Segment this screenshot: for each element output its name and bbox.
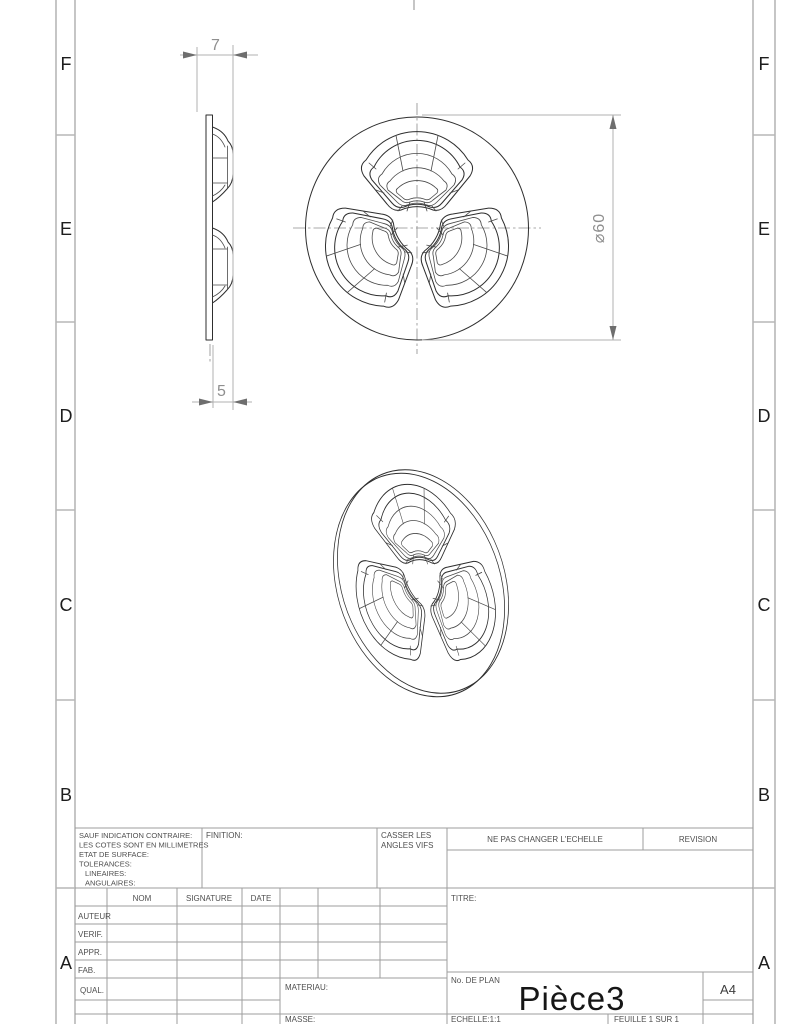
zone-letter: D	[60, 406, 73, 426]
col-nom: NOM	[133, 894, 152, 903]
feuille-label: FEUILLE 1 SUR 1	[614, 1015, 679, 1024]
zone-letter: A	[758, 953, 770, 973]
width-top-value: 7	[211, 37, 221, 54]
note-line: SAUF INDICATION CONTRAIRE:	[79, 831, 192, 840]
iso-back-edge	[318, 473, 521, 698]
side-view	[206, 115, 233, 364]
row-verif: VERIF.	[78, 930, 103, 939]
iso-pocket	[339, 541, 441, 677]
finition-label: FINITION:	[206, 831, 242, 840]
note-line: ETAT DE SURFACE:	[79, 850, 149, 859]
front-view	[293, 103, 541, 354]
materiau-label: MATERIAU:	[285, 983, 328, 992]
zone-letter: E	[758, 219, 770, 239]
zone-letters-right: F E D C B A	[758, 54, 771, 973]
zone-letter: F	[759, 54, 770, 74]
titre-label: TITRE:	[451, 894, 476, 903]
row-fab: FAB.	[78, 966, 95, 975]
part-name: Pièce3	[519, 980, 626, 1017]
iso-pocket	[422, 541, 506, 677]
diameter-value: ⌀60	[591, 213, 608, 243]
width-bottom-value: 5	[217, 383, 227, 400]
pocket-lower-left	[306, 188, 430, 324]
zone-letter: C	[60, 595, 73, 615]
width-dimension-bottom: 5	[192, 345, 252, 408]
arrow-up-icon	[610, 115, 617, 129]
masse-label: MASSE:	[285, 1015, 315, 1024]
title-block: SAUF INDICATION CONTRAIRE: LES COTES SON…	[75, 828, 753, 1024]
isometric-view	[317, 469, 525, 697]
pocket-lower-right	[404, 188, 528, 324]
no-scale-note: NE PAS CHANGER L'ECHELLE	[487, 835, 603, 844]
drawing-canvas: F E D C B A F E D C B A	[0, 0, 791, 1024]
zone-letter: E	[60, 219, 72, 239]
revision-label: REVISION	[679, 835, 717, 844]
zone-letter: C	[758, 595, 771, 615]
note-line: ANGULAIRES:	[85, 879, 135, 888]
row-appr: APPR.	[78, 948, 102, 957]
col-signature: SIGNATURE	[186, 894, 232, 903]
deburr-note: ANGLES VIFS	[381, 841, 433, 850]
note-line: TOLERANCES:	[79, 860, 132, 869]
drawing-sheet: F E D C B A F E D C B A	[0, 0, 791, 1024]
zone-letters-left: F E D C B A	[60, 54, 73, 973]
arrow-left-icon	[233, 399, 247, 406]
width-dimension-top: 7	[180, 37, 258, 410]
iso-front-face	[322, 469, 525, 694]
row-auteur: AUTEUR	[78, 912, 111, 921]
zone-letter: B	[60, 785, 72, 805]
zone-letter: D	[758, 406, 771, 426]
deburr-note: CASSER LES	[381, 831, 431, 840]
row-qual: QUAL.	[80, 986, 104, 995]
col-date: DATE	[251, 894, 272, 903]
arrow-down-icon	[610, 326, 617, 340]
note-line: LINEAIRES:	[85, 869, 126, 878]
arrow-left-icon	[233, 52, 247, 59]
zone-letter: A	[60, 953, 72, 973]
zone-letter: F	[61, 54, 72, 74]
sheet-format: A4	[720, 982, 736, 997]
plan-label: No. DE PLAN	[451, 976, 500, 985]
iso-pocket	[366, 484, 462, 564]
arrow-right-icon	[199, 399, 213, 406]
note-line: LES COTES SONT EN MILLIMETRES	[79, 841, 208, 850]
zone-letter: B	[758, 785, 770, 805]
arrow-right-icon	[183, 52, 197, 59]
echelle-label: ECHELLE:1:1	[451, 1015, 501, 1024]
tolerance-notes: SAUF INDICATION CONTRAIRE: LES COTES SON…	[79, 831, 208, 888]
